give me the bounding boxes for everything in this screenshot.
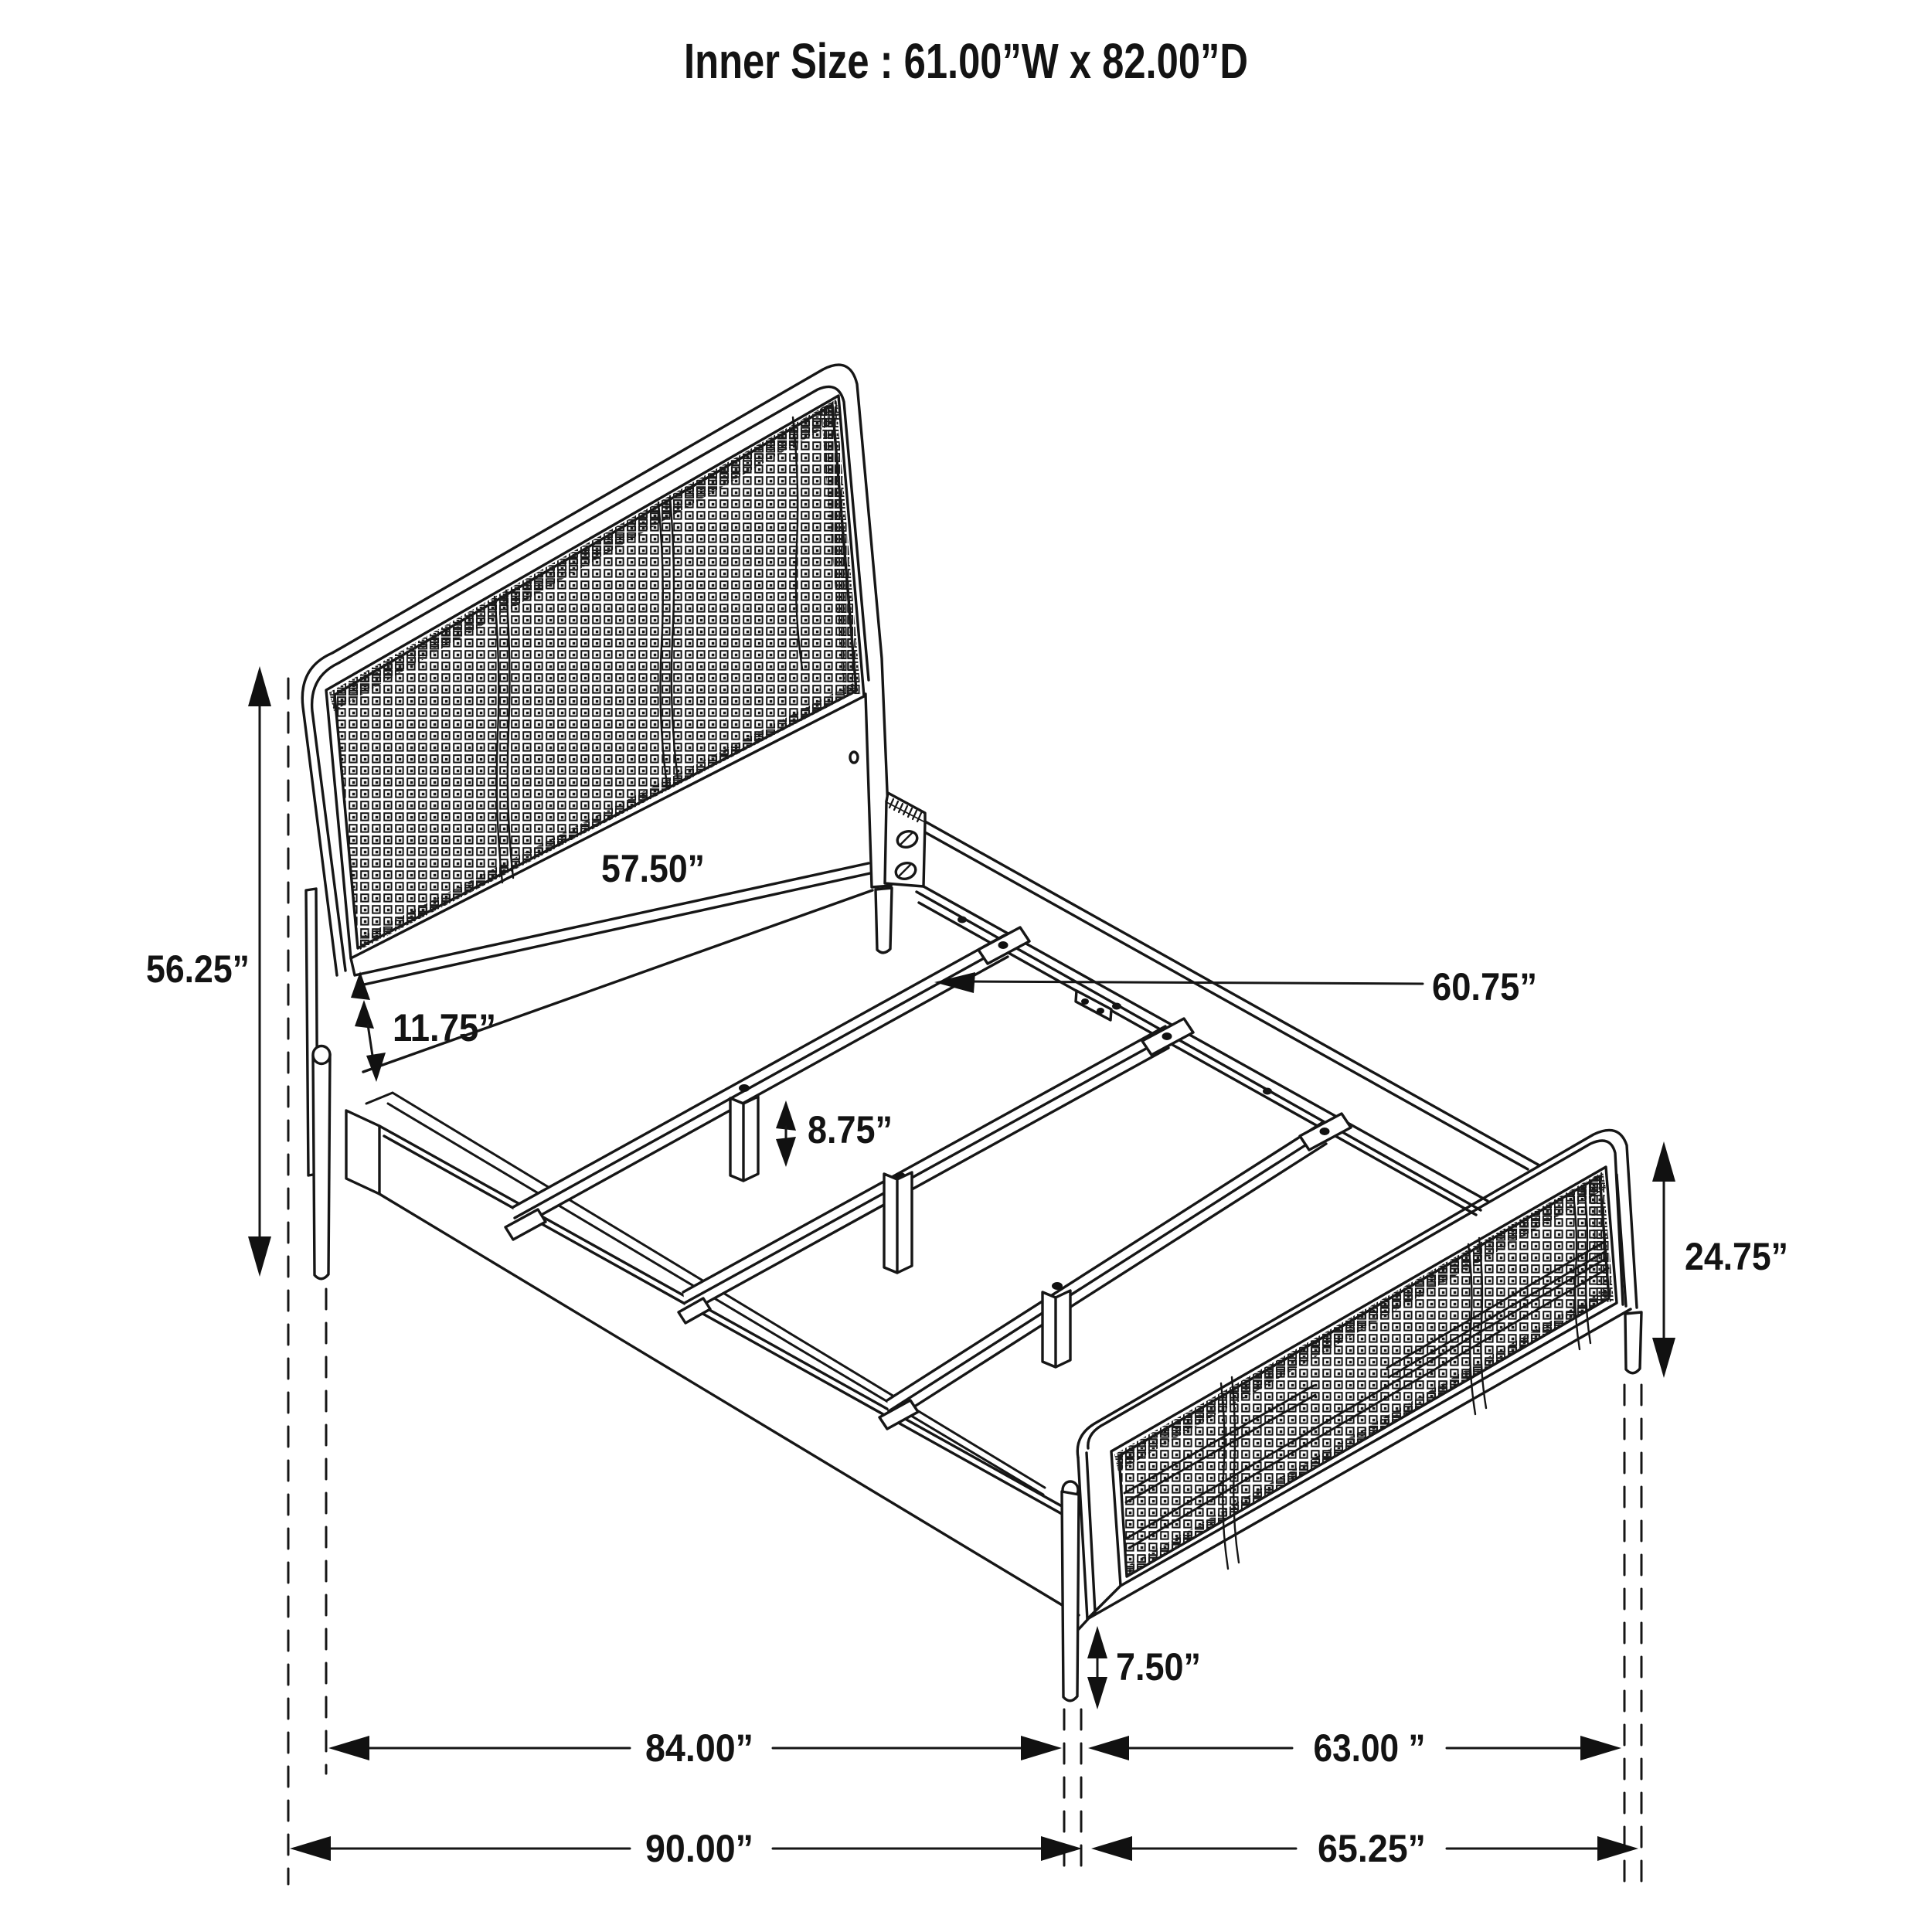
svg-text:63.00 ”: 63.00 ” bbox=[1314, 1726, 1426, 1770]
svg-text:84.00”: 84.00” bbox=[645, 1726, 753, 1770]
svg-text:60.75”: 60.75” bbox=[1432, 965, 1537, 1009]
svg-text:90.00”: 90.00” bbox=[645, 1827, 753, 1870]
svg-text:Inner Size : 61.00”W x 82.00”D: Inner Size : 61.00”W x 82.00”D bbox=[684, 33, 1248, 89]
svg-text:65.25”: 65.25” bbox=[1318, 1827, 1426, 1870]
svg-text:8.75”: 8.75” bbox=[808, 1108, 893, 1151]
svg-text:57.50”: 57.50” bbox=[601, 847, 705, 890]
svg-text:7.50”: 7.50” bbox=[1116, 1645, 1201, 1689]
svg-text:11.75”: 11.75” bbox=[393, 1006, 496, 1049]
svg-text:24.75”: 24.75” bbox=[1685, 1235, 1788, 1278]
svg-text:56.25”: 56.25” bbox=[146, 947, 250, 991]
